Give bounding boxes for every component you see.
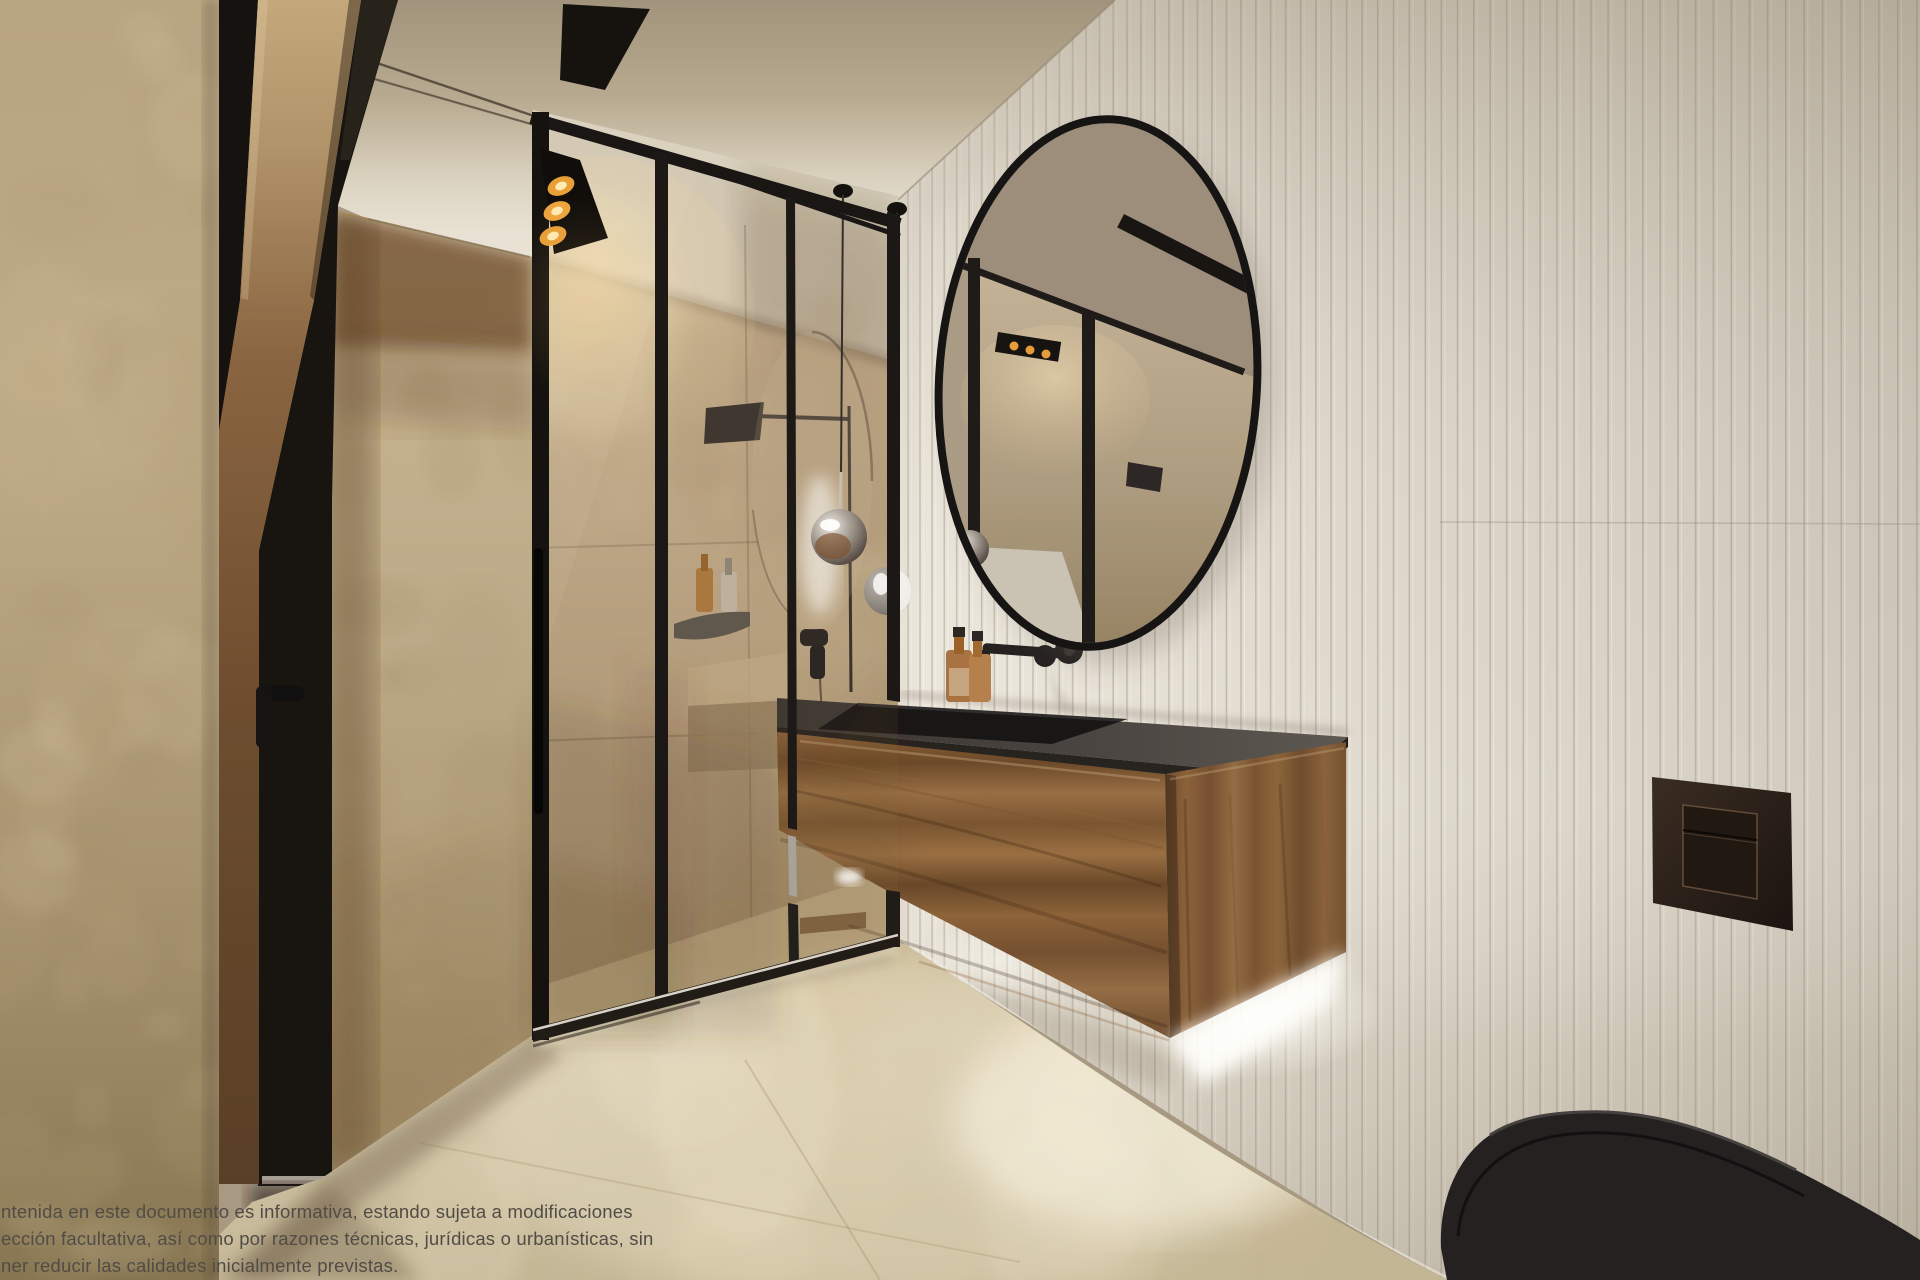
svg-text:ner reducir las calidades inic: ner reducir las calidades inicialmente p… (1, 1255, 398, 1276)
svg-text:ntenida en este documento es i: ntenida en este documento es informativa… (1, 1201, 633, 1222)
svg-text:ección facultativa, así como p: ección facultativa, así como por razones… (1, 1228, 654, 1249)
